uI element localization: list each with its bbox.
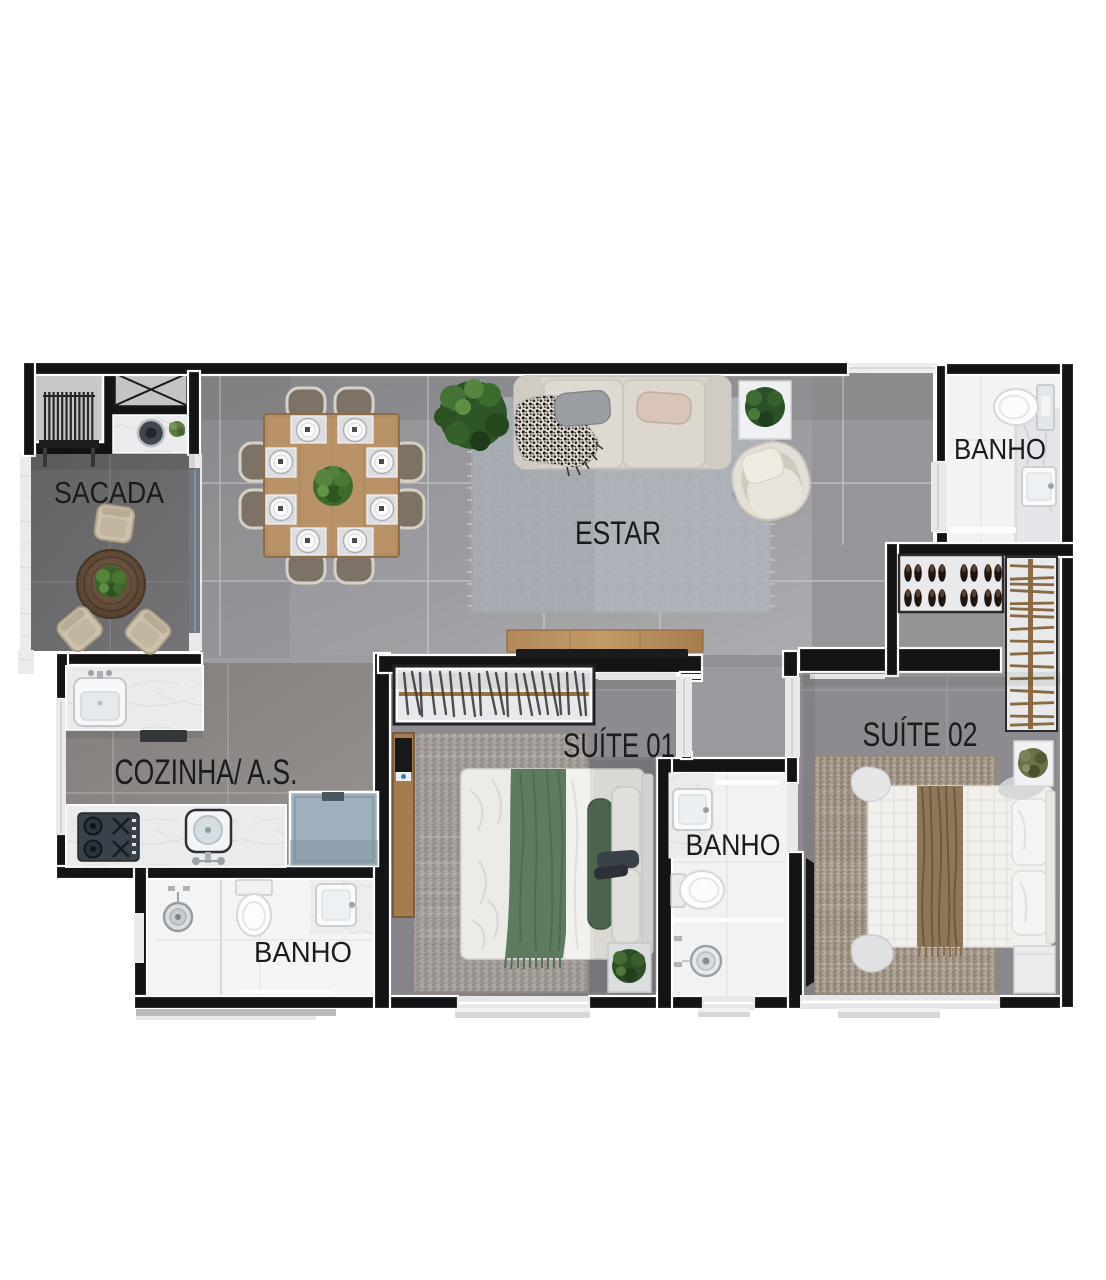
svg-text:BANHO: BANHO — [686, 829, 781, 862]
svg-text:SUÍTE 02: SUÍTE 02 — [863, 716, 978, 754]
svg-text:SUÍTE 01: SUÍTE 01 — [563, 727, 675, 765]
svg-text:ESTAR: ESTAR — [575, 515, 661, 551]
svg-text:SACADA: SACADA — [54, 475, 164, 510]
svg-text:COZINHA/ A.S.: COZINHA/ A.S. — [115, 753, 298, 792]
svg-text:BANHO: BANHO — [954, 434, 1046, 466]
svg-text:BANHO: BANHO — [254, 937, 352, 969]
